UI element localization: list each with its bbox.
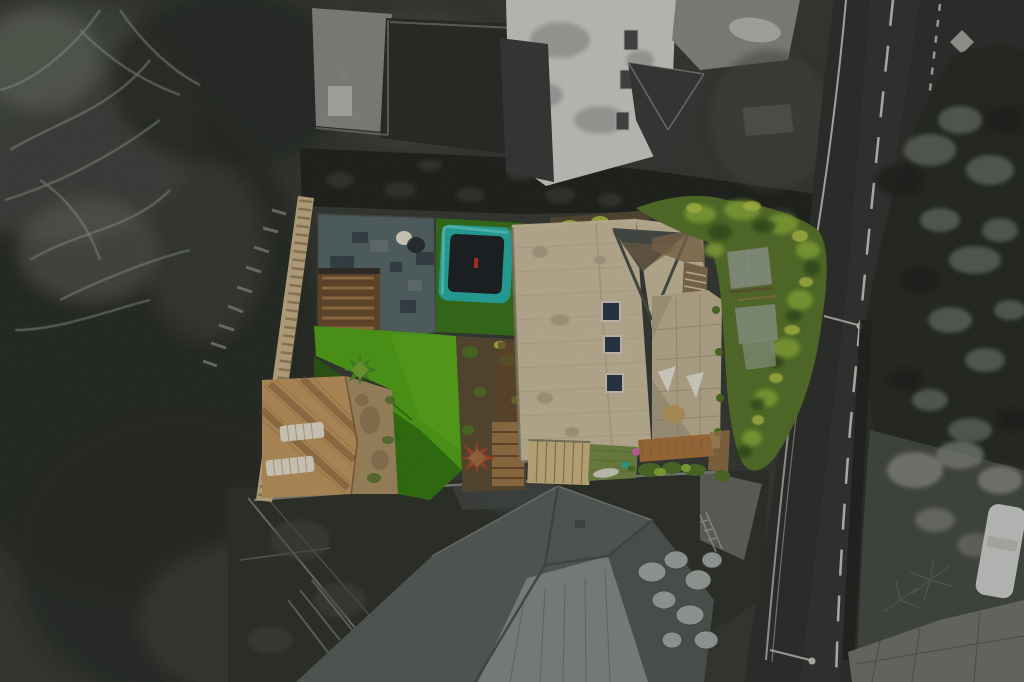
aerial-photo bbox=[0, 0, 1024, 682]
photo-grain-overlay bbox=[0, 0, 1024, 682]
aerial-photo-screenshot bbox=[0, 0, 1024, 682]
